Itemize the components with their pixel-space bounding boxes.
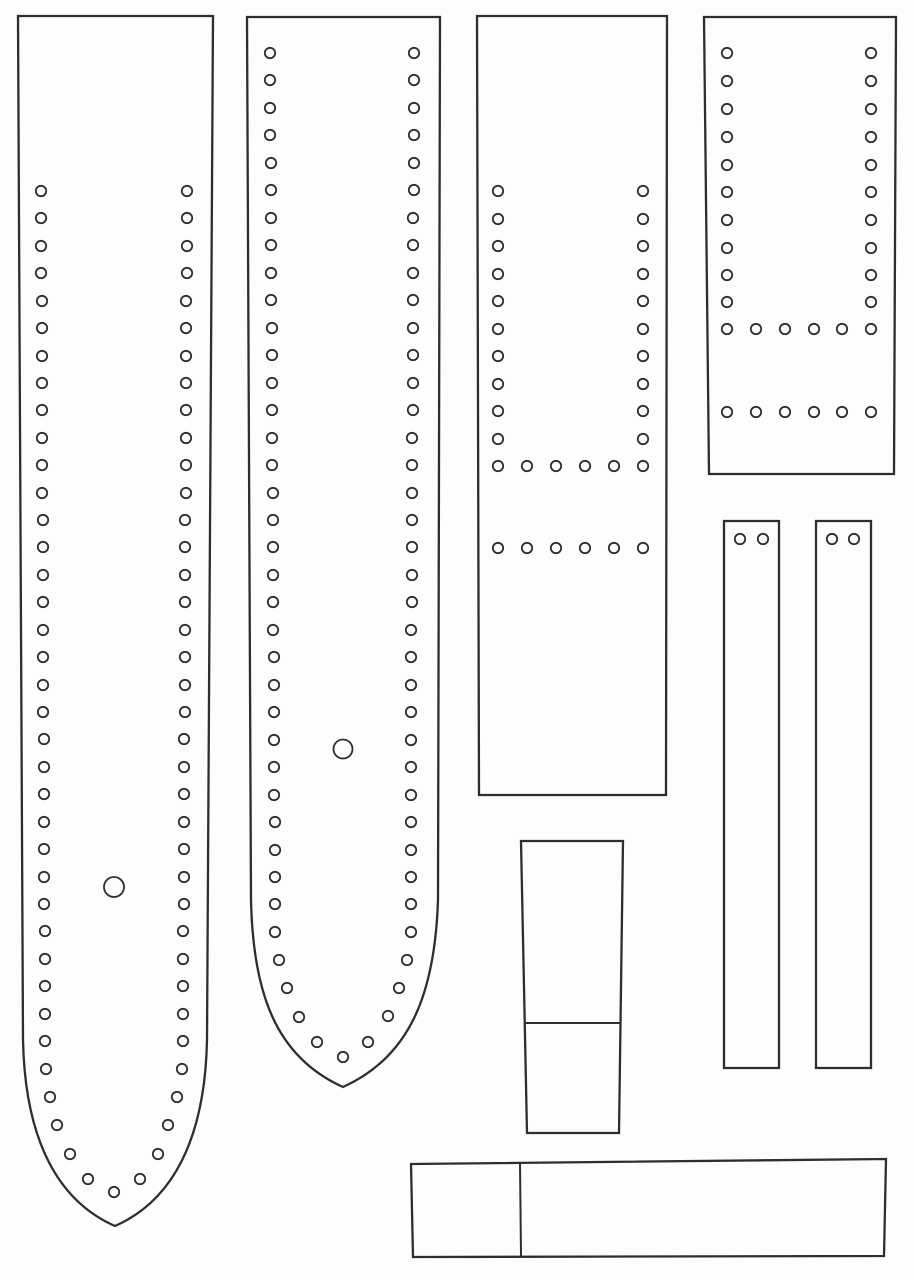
stitch-hole — [866, 324, 876, 334]
stitch-hole — [266, 268, 276, 278]
stitch-hole — [722, 243, 732, 253]
stitch-hole — [809, 324, 819, 334]
stitch-hole — [37, 323, 47, 333]
stitch-hole — [406, 652, 416, 662]
stitch-hole — [493, 324, 503, 334]
stitch-hole — [722, 297, 732, 307]
stitch-hole — [45, 1092, 55, 1102]
stitch-hole — [638, 186, 648, 196]
stitch-hole — [493, 434, 503, 444]
stitch-hole — [40, 954, 50, 964]
stitch-hole — [638, 461, 648, 471]
stitch-hole — [522, 543, 532, 553]
stitch-hole — [409, 103, 419, 113]
stitch-hole — [758, 534, 768, 544]
stitch-hole — [268, 570, 278, 580]
stitch-hole — [181, 405, 191, 415]
stitch-hole — [493, 241, 503, 251]
stitch-hole — [40, 926, 50, 936]
stitch-hole — [493, 461, 503, 471]
stitch-hole — [409, 75, 419, 85]
stitch-hole — [394, 983, 404, 993]
stitch-hole — [493, 351, 503, 361]
stitch-hole — [38, 515, 48, 525]
stitch-hole — [409, 185, 419, 195]
strip-narrow-right — [816, 521, 871, 1068]
stitch-hole — [268, 515, 278, 525]
stitch-hole — [39, 762, 49, 772]
stitch-hole — [270, 899, 280, 909]
stitch-hole — [180, 707, 190, 717]
stitch-hole — [493, 269, 503, 279]
stitch-hole — [722, 270, 732, 280]
stitch-hole — [163, 1120, 173, 1130]
stitch-hole — [179, 844, 189, 854]
stitch-hole — [493, 186, 503, 196]
stitch-hole — [638, 214, 648, 224]
stitch-hole — [722, 407, 732, 417]
stitch-hole — [266, 158, 276, 168]
stitch-hole — [38, 542, 48, 552]
stitch-hole — [37, 405, 47, 415]
stitch-hole — [267, 460, 277, 470]
stitch-hole — [269, 680, 279, 690]
stitch-hole — [39, 817, 49, 827]
stitch-hole — [179, 762, 189, 772]
stitch-hole — [406, 845, 416, 855]
stitch-hole — [408, 213, 418, 223]
stitch-hole — [406, 790, 416, 800]
stitch-hole — [722, 104, 732, 114]
stitch-hole — [406, 872, 416, 882]
stitch-hole — [178, 954, 188, 964]
stitch-hole — [40, 1036, 50, 1046]
stitch-hole — [638, 406, 648, 416]
stitch-hole — [269, 707, 279, 717]
stitch-hole — [40, 981, 50, 991]
stitch-hole — [180, 570, 190, 580]
stitch-hole — [266, 240, 276, 250]
stitch-hole — [407, 597, 417, 607]
pattern-drawing — [0, 0, 914, 1280]
stitch-hole — [38, 625, 48, 635]
stitch-hole — [409, 130, 419, 140]
stitch-hole — [268, 542, 278, 552]
stitch-hole — [39, 734, 49, 744]
stitch-hole — [38, 680, 48, 690]
stitch-hole — [827, 534, 837, 544]
stitch-hole — [265, 75, 275, 85]
stitch-hole — [408, 350, 418, 360]
stitch-hole — [408, 295, 418, 305]
stitch-hole — [407, 570, 417, 580]
stitch-hole — [265, 103, 275, 113]
stitch-hole — [266, 185, 276, 195]
stitch-hole — [179, 899, 189, 909]
stitch-hole — [36, 213, 46, 223]
stitch-hole — [609, 543, 619, 553]
strip-narrow-left — [724, 521, 779, 1068]
stitch-hole — [41, 1064, 51, 1074]
stitch-hole — [722, 48, 732, 58]
stitch-hole — [751, 407, 761, 417]
stitch-hole — [179, 789, 189, 799]
stitch-hole — [493, 379, 503, 389]
stitch-hole — [274, 955, 284, 965]
stitch-hole — [638, 296, 648, 306]
fixing-hole — [104, 877, 124, 897]
stitch-hole — [36, 186, 46, 196]
stitch-hole — [407, 460, 417, 470]
stitch-hole — [38, 652, 48, 662]
stitch-hole — [267, 433, 277, 443]
rect-panel-top-right — [704, 17, 896, 474]
stitch-hole — [181, 351, 191, 361]
bar-bottom-horizontal-outline — [411, 1159, 886, 1257]
stitch-hole — [406, 735, 416, 745]
stitch-hole — [338, 1052, 348, 1062]
stitch-hole — [866, 297, 876, 307]
keeper-block-bottom-center-outline — [521, 841, 623, 1133]
strip-narrow-left-outline — [724, 521, 779, 1068]
stitch-hole — [722, 324, 732, 334]
strap-long-rounded-second — [247, 17, 440, 1087]
pattern-sheet — [0, 0, 914, 1280]
stitch-hole — [383, 1011, 393, 1021]
strip-narrow-right-outline — [816, 521, 871, 1068]
stitch-hole — [269, 790, 279, 800]
stitch-hole — [406, 817, 416, 827]
stitch-hole — [312, 1037, 322, 1047]
stitch-hole — [866, 407, 876, 417]
stitch-hole — [269, 652, 279, 662]
stitch-hole — [36, 241, 46, 251]
stitch-hole — [722, 76, 732, 86]
stitch-hole — [638, 241, 648, 251]
stitch-hole — [268, 488, 278, 498]
stitch-hole — [83, 1174, 93, 1184]
stitch-hole — [866, 215, 876, 225]
stitch-hole — [267, 378, 277, 388]
stitch-hole — [282, 983, 292, 993]
stitch-hole — [363, 1037, 373, 1047]
stitch-hole — [407, 515, 417, 525]
stitch-hole — [178, 926, 188, 936]
stitch-hole — [178, 1009, 188, 1019]
stitch-hole — [182, 213, 192, 223]
stitch-hole — [493, 296, 503, 306]
stitch-hole — [269, 735, 279, 745]
stitch-hole — [837, 407, 847, 417]
stitch-hole — [406, 762, 416, 772]
stitch-hole — [52, 1120, 62, 1130]
stitch-hole — [406, 899, 416, 909]
stitch-hole — [638, 324, 648, 334]
stitch-hole — [39, 789, 49, 799]
stitch-hole — [408, 405, 418, 415]
stitch-hole — [38, 570, 48, 580]
stitch-hole — [38, 707, 48, 717]
stitch-hole — [735, 534, 745, 544]
stitch-hole — [181, 433, 191, 443]
stitch-hole — [407, 433, 417, 443]
stitch-hole — [406, 625, 416, 635]
stitch-hole — [638, 351, 648, 361]
stitch-hole — [265, 48, 275, 58]
stitch-hole — [809, 407, 819, 417]
stitch-hole — [172, 1092, 182, 1102]
rect-panel-center — [477, 16, 667, 795]
stitch-hole — [866, 270, 876, 280]
stitch-hole — [580, 461, 590, 471]
stitch-hole — [406, 927, 416, 937]
stitch-hole — [866, 243, 876, 253]
stitch-hole — [522, 461, 532, 471]
bar-bottom-horizontal — [411, 1159, 886, 1257]
stitch-hole — [269, 762, 279, 772]
stitch-hole — [270, 817, 280, 827]
stitch-hole — [866, 187, 876, 197]
stitch-hole — [408, 240, 418, 250]
stitch-hole — [407, 488, 417, 498]
stitch-hole — [493, 214, 503, 224]
strap-long-tapered-left — [18, 16, 213, 1226]
stitch-hole — [182, 268, 192, 278]
stitch-hole — [40, 1009, 50, 1019]
stitch-hole — [270, 927, 280, 937]
stitch-hole — [177, 1064, 187, 1074]
stitch-hole — [37, 351, 47, 361]
stitch-hole — [866, 132, 876, 142]
stitch-hole — [178, 981, 188, 991]
stitch-hole — [180, 597, 190, 607]
stitch-hole — [866, 76, 876, 86]
stitch-hole — [39, 844, 49, 854]
stitch-hole — [493, 406, 503, 416]
stitch-hole — [551, 461, 561, 471]
stitch-hole — [181, 323, 191, 333]
stitch-hole — [182, 241, 192, 251]
stitch-hole — [39, 872, 49, 882]
rect-panel-center-outline — [477, 16, 667, 795]
stitch-hole — [180, 515, 190, 525]
stitch-hole — [722, 160, 732, 170]
stitch-hole — [180, 542, 190, 552]
stitch-hole — [849, 534, 859, 544]
stitch-hole — [638, 543, 648, 553]
bar-bottom-horizontal-divider-line — [520, 1163, 521, 1256]
stitch-hole — [268, 597, 278, 607]
stitch-hole — [780, 324, 790, 334]
stitch-hole — [609, 461, 619, 471]
stitch-hole — [153, 1149, 163, 1159]
stitch-hole — [179, 817, 189, 827]
stitch-hole — [179, 734, 189, 744]
stitch-hole — [182, 186, 192, 196]
stitch-hole — [180, 625, 190, 635]
stitch-hole — [65, 1149, 75, 1159]
stitch-hole — [408, 323, 418, 333]
stitch-hole — [270, 845, 280, 855]
stitch-hole — [638, 379, 648, 389]
stitch-hole — [179, 872, 189, 882]
stitch-hole — [181, 488, 191, 498]
stitch-hole — [638, 269, 648, 279]
stitch-hole — [408, 268, 418, 278]
stitch-hole — [268, 625, 278, 635]
stitch-hole — [36, 268, 46, 278]
stitch-hole — [866, 160, 876, 170]
stitch-hole — [37, 460, 47, 470]
stitch-hole — [180, 680, 190, 690]
stitch-hole — [406, 680, 416, 690]
keeper-block-bottom-center — [521, 841, 623, 1133]
stitch-hole — [178, 1036, 188, 1046]
stitch-hole — [551, 543, 561, 553]
fixing-hole — [334, 740, 353, 759]
stitch-hole — [493, 543, 503, 553]
stitch-hole — [267, 323, 277, 333]
stitch-hole — [751, 324, 761, 334]
stitch-hole — [181, 460, 191, 470]
stitch-hole — [266, 213, 276, 223]
stitch-hole — [265, 130, 275, 140]
stitch-hole — [294, 1012, 304, 1022]
stitch-hole — [722, 215, 732, 225]
stitch-hole — [109, 1187, 119, 1197]
stitch-hole — [866, 48, 876, 58]
stitch-hole — [135, 1174, 145, 1184]
stitch-hole — [722, 187, 732, 197]
stitch-hole — [406, 707, 416, 717]
stitch-hole — [408, 378, 418, 388]
stitch-hole — [267, 350, 277, 360]
stitch-hole — [37, 378, 47, 388]
stitch-hole — [267, 405, 277, 415]
stitch-hole — [409, 48, 419, 58]
stitch-hole — [38, 597, 48, 607]
stitch-hole — [722, 132, 732, 142]
strap-long-tapered-left-outline — [18, 16, 213, 1226]
stitch-hole — [866, 104, 876, 114]
stitch-hole — [37, 433, 47, 443]
stitch-hole — [37, 488, 47, 498]
stitch-hole — [402, 955, 412, 965]
stitch-hole — [181, 378, 191, 388]
stitch-hole — [780, 407, 790, 417]
stitch-hole — [39, 899, 49, 909]
stitch-hole — [181, 296, 191, 306]
stitch-hole — [180, 652, 190, 662]
stitch-hole — [638, 434, 648, 444]
stitch-hole — [407, 542, 417, 552]
stitch-hole — [409, 158, 419, 168]
stitch-hole — [837, 324, 847, 334]
stitch-hole — [266, 295, 276, 305]
stitch-hole — [270, 872, 280, 882]
stitch-hole — [37, 296, 47, 306]
stitch-hole — [580, 543, 590, 553]
